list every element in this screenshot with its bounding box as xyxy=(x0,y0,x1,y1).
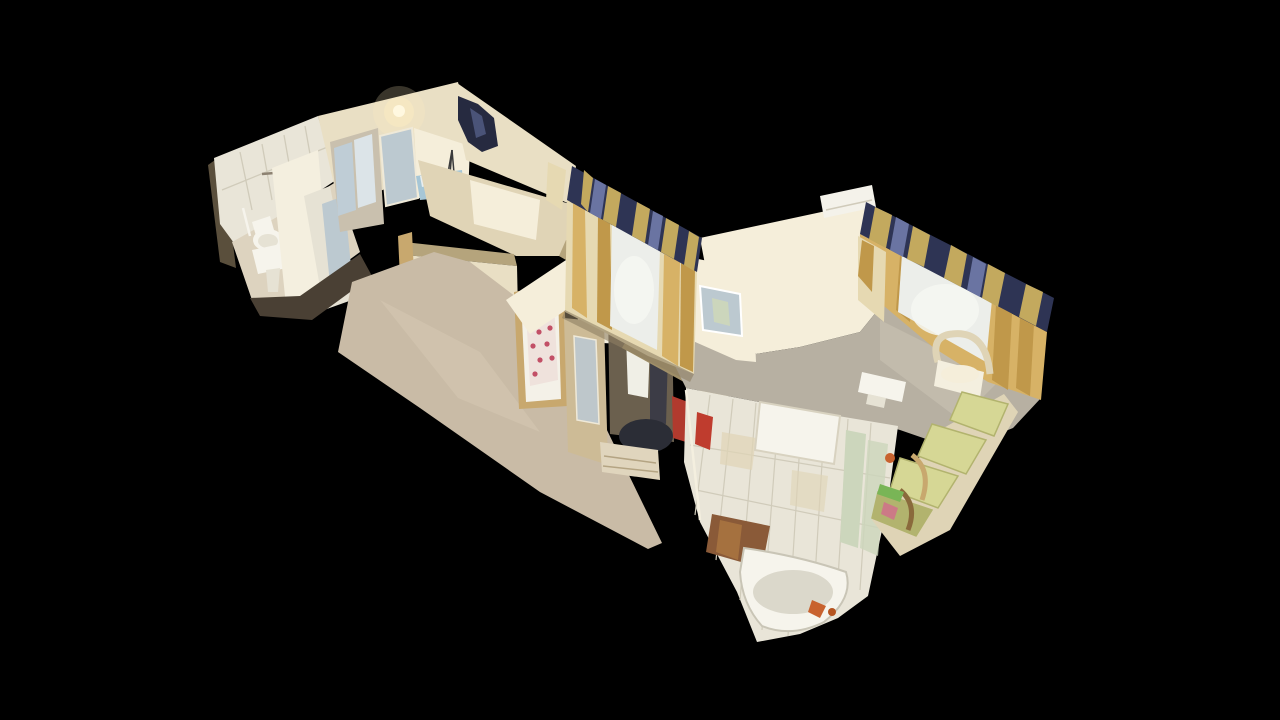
hallway-mirror xyxy=(380,128,418,206)
floral-dot xyxy=(537,357,542,362)
orange-item xyxy=(828,608,836,616)
curtain-stripe xyxy=(662,254,680,366)
tile-grunge xyxy=(720,432,756,470)
floral-dot xyxy=(532,371,537,376)
curtain-stripe xyxy=(680,263,695,372)
sink-pedestal xyxy=(266,268,280,292)
curtain-stripe xyxy=(572,203,587,318)
curtain-stripe xyxy=(597,216,612,330)
floral-dot xyxy=(536,329,541,334)
floral-dot xyxy=(549,355,554,360)
red-towel xyxy=(695,412,713,450)
mirror-reflection xyxy=(712,298,730,326)
armchair-cushion xyxy=(941,365,979,383)
dollhouse-3d-viewport[interactable] xyxy=(0,0,1280,720)
floral-dot xyxy=(544,341,549,346)
tile-grunge xyxy=(790,470,828,512)
window-glow xyxy=(911,284,979,336)
floral-dot xyxy=(547,325,552,330)
orange-ball xyxy=(885,453,895,463)
window-glow xyxy=(614,256,654,324)
wardrobe-mirror xyxy=(574,336,599,424)
floral-dot xyxy=(530,343,535,348)
ceiling-lamp xyxy=(393,105,405,117)
